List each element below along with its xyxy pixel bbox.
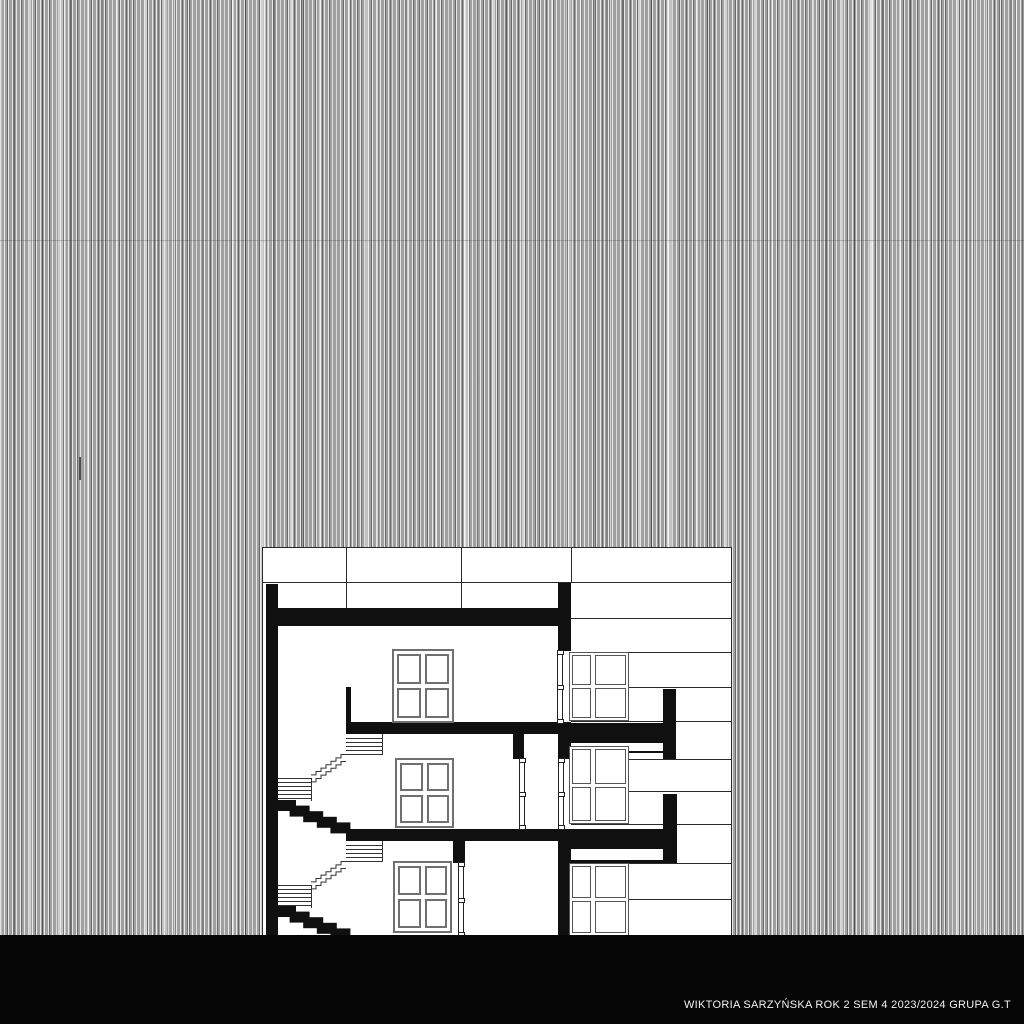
background-guide-line [0,240,1024,241]
facade-window-ground [569,863,629,936]
window-pane [595,866,626,898]
door-cut-middle-left [519,759,525,829]
door-cut-ground [458,863,464,936]
window-pane [425,866,448,895]
window-pane [595,688,626,718]
window-pane [400,763,423,791]
window-pane [572,655,591,685]
floor-slab-upper [346,722,571,734]
caption-text: WIKTORIA SARZYŃSKA ROK 2 SEM 4 2023/2024… [684,999,1011,1011]
background-stray-mark [79,457,81,480]
drawing-sheet: WIKTORIA SARZYŃSKA ROK 2 SEM 4 2023/2024… [0,0,1024,1024]
window-pane [572,749,591,784]
balcony-slab-lower [558,829,677,863]
floor-slab-lower [346,829,571,841]
right-wall-top [558,583,571,651]
partition-stub-ground [453,841,465,863]
window-pane [572,866,591,898]
window-pane [425,688,449,718]
building-section-drawing [262,547,732,935]
ground-band: WIKTORIA SARZYŃSKA ROK 2 SEM 4 2023/2024… [0,935,1024,1024]
window-ground-floor [393,861,452,933]
facade-window-top [569,652,629,721]
balcony-wall-lower [663,794,677,863]
stair-middle-floor [272,734,383,833]
window-pane [595,787,626,822]
window-middle-floor [395,758,454,828]
window-pane [572,787,591,822]
window-pane [425,654,449,684]
stair-ground-floor [274,841,383,936]
window-pane [595,901,626,933]
cut-stair-flight [276,800,350,833]
glazing-cut-top-right [557,651,563,723]
window-pane [572,901,591,933]
cut-stair-flight [276,906,350,936]
balcony-wall-upper [663,689,676,759]
window-pane [595,749,626,784]
window-pane [425,899,448,928]
door-cut-middle-right [558,759,564,829]
window-pane [595,655,626,685]
window-top-floor [392,649,454,723]
window-pane [397,688,421,718]
window-pane [397,654,421,684]
balcony-recess [571,849,663,860]
window-pane [398,899,421,928]
window-pane [398,866,421,895]
roof-slab [266,608,571,626]
window-pane [427,763,450,791]
facade-window-middle [569,746,629,824]
window-pane [572,688,591,718]
window-pane [400,795,423,823]
parapet-lines [263,548,732,608]
window-pane [427,795,450,823]
stair-railing-post [346,687,351,722]
left-wall [266,584,278,936]
partition-stub-middle [513,734,524,759]
